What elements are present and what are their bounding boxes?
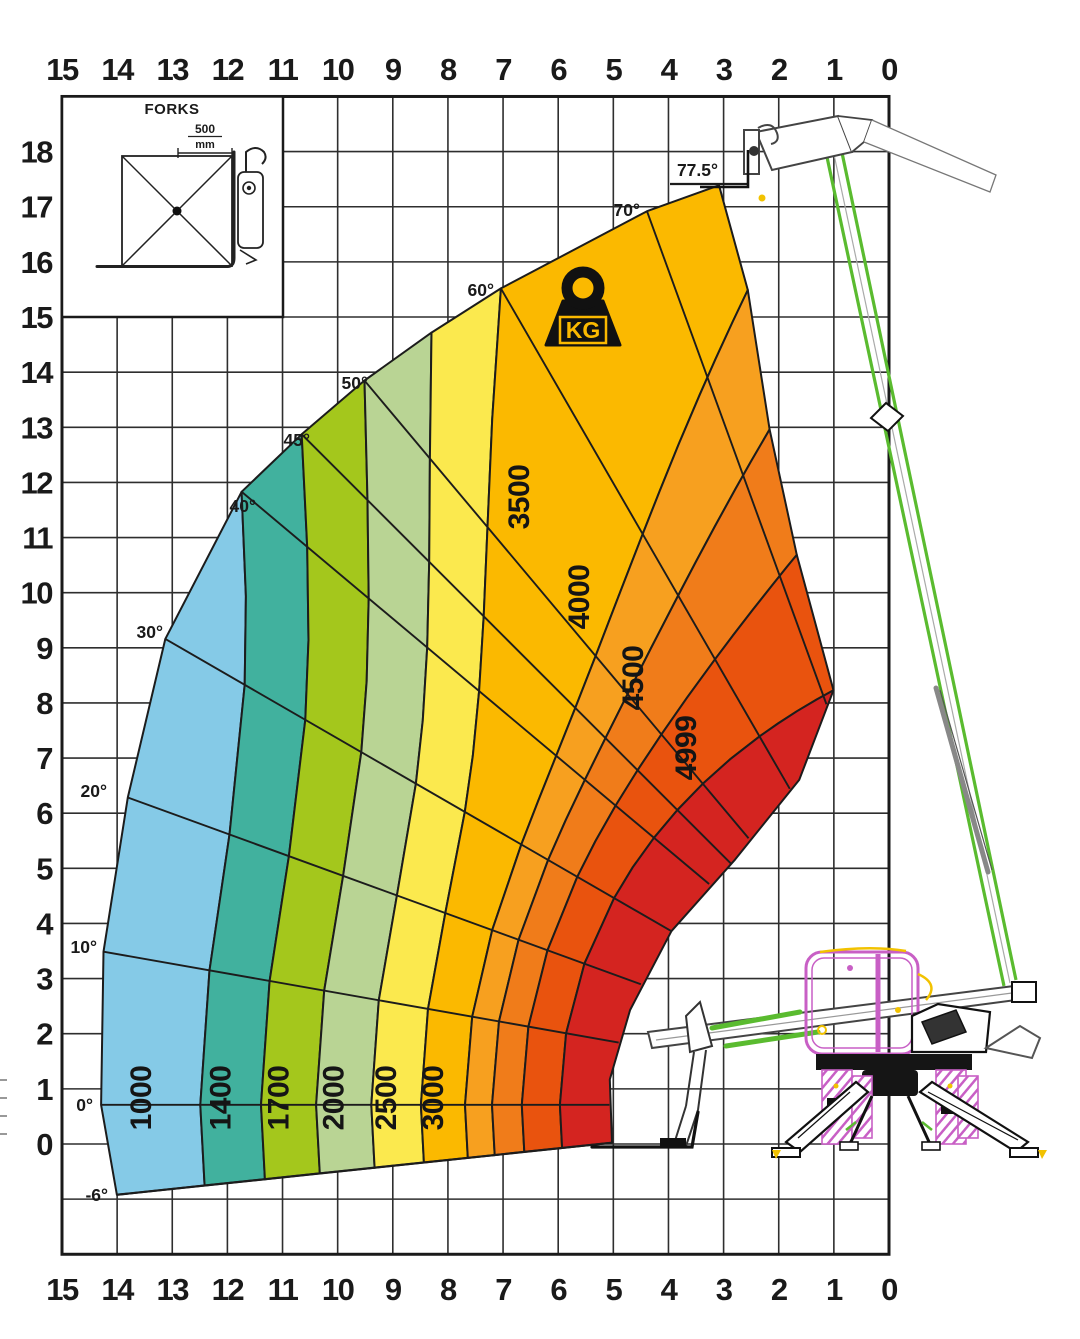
inset-dim-value: 500	[195, 122, 215, 136]
x-tick-top: 7	[495, 52, 511, 87]
x-tick-top: 12	[212, 52, 244, 87]
x-tick-top: 10	[322, 52, 354, 87]
y-tick: 9	[36, 631, 53, 666]
y-tick: 7	[36, 741, 52, 776]
y-tick: 0	[36, 1127, 52, 1162]
load-label-2500: 2500	[370, 1066, 403, 1131]
load-label-1000: 1000	[125, 1066, 158, 1131]
x-tick-bottom: 2	[771, 1272, 787, 1307]
y-tick: 3	[36, 962, 53, 997]
x-axis-bottom-labels: 1514131211109876543210	[46, 1272, 897, 1307]
angle-label-20: 20°	[81, 781, 107, 801]
angle-label-70: 70°	[614, 200, 640, 220]
x-tick-bottom: 4	[661, 1272, 679, 1307]
y-tick: 17	[21, 190, 53, 225]
x-tick-top: 5	[605, 52, 622, 87]
y-tick: 2	[36, 1017, 52, 1052]
y-axis-labels: 1817161514131211109876543210	[21, 135, 55, 1162]
inset-dim-unit: mm	[195, 139, 215, 151]
y-tick: 12	[21, 465, 53, 500]
x-tick-top: 2	[771, 52, 787, 87]
x-tick-top: 3	[716, 52, 733, 87]
y-tick: 10	[21, 576, 53, 611]
y-tick: 13	[21, 410, 54, 445]
load-label-4500: 4500	[617, 646, 650, 711]
y-tick: 18	[21, 135, 54, 170]
x-tick-bottom: 9	[385, 1272, 402, 1307]
y-tick: 5	[36, 851, 53, 886]
y-tick: 11	[22, 521, 53, 556]
x-tick-top: 11	[268, 52, 299, 87]
x-tick-bottom: 11	[268, 1272, 299, 1307]
x-tick-top: 13	[157, 52, 190, 87]
angle-label-10: 10°	[71, 937, 97, 957]
x-tick-bottom: 10	[322, 1272, 354, 1307]
x-tick-top: 6	[550, 52, 567, 87]
x-tick-bottom: 0	[881, 1272, 897, 1307]
x-tick-bottom: 15	[46, 1272, 79, 1307]
x-tick-bottom: 7	[495, 1272, 511, 1307]
angle-label-45: 45°	[284, 430, 310, 450]
x-tick-bottom: 1	[826, 1272, 843, 1307]
x-tick-top: 8	[440, 52, 457, 87]
x-tick-top: 0	[881, 52, 897, 87]
x-tick-top: 14	[101, 52, 135, 87]
x-tick-top: 4	[661, 52, 679, 87]
angle-label-50: 50°	[342, 373, 368, 393]
load-chart-canvas: 1514131211109876543210151413121110987654…	[0, 0, 1080, 1339]
forks-inset: FORKS500mm	[62, 96, 283, 317]
x-tick-bottom: 8	[440, 1272, 457, 1307]
raised-boom-line	[824, 143, 1004, 986]
kg-label: KG	[566, 317, 601, 343]
x-tick-top: 1	[826, 52, 843, 87]
x-tick-bottom: 14	[101, 1272, 135, 1307]
load-label-1400: 1400	[205, 1066, 238, 1131]
x-tick-bottom: 5	[605, 1272, 622, 1307]
inset-title: FORKS	[145, 101, 200, 118]
load-label-3000: 3000	[417, 1066, 450, 1131]
x-tick-top: 15	[46, 52, 79, 87]
x-tick-top: 9	[385, 52, 402, 87]
y-tick: 16	[21, 245, 54, 280]
x-tick-bottom: 12	[212, 1272, 244, 1307]
load-label-3500: 3500	[503, 465, 536, 530]
load-label-2000: 2000	[318, 1066, 351, 1131]
left-edge-marks	[0, 1080, 7, 1134]
load-label-4999: 4999	[670, 716, 703, 781]
y-tick: 6	[36, 796, 53, 831]
angle-label-30: 30°	[137, 622, 163, 642]
angle-label-77.5: 77.5°	[677, 160, 718, 180]
load-label-4000: 4000	[563, 565, 596, 630]
angle-label-40: 40°	[230, 496, 256, 516]
angle-label--6: -6°	[85, 1185, 108, 1205]
x-tick-bottom: 13	[157, 1272, 190, 1307]
x-tick-bottom: 6	[550, 1272, 567, 1307]
y-tick: 4	[36, 906, 54, 941]
load-chart-page: 1514131211109876543210151413121110987654…	[0, 0, 1080, 1339]
load-label-1700: 1700	[263, 1066, 296, 1131]
angle-label-0: 0°	[76, 1095, 93, 1115]
y-tick: 14	[21, 355, 55, 390]
y-tick: 15	[21, 300, 54, 335]
y-tick: 8	[36, 686, 53, 721]
y-tick: 1	[36, 1072, 53, 1107]
x-axis-top-labels: 1514131211109876543210	[46, 52, 897, 87]
angle-label-60: 60°	[468, 280, 494, 300]
x-tick-bottom: 3	[716, 1272, 733, 1307]
